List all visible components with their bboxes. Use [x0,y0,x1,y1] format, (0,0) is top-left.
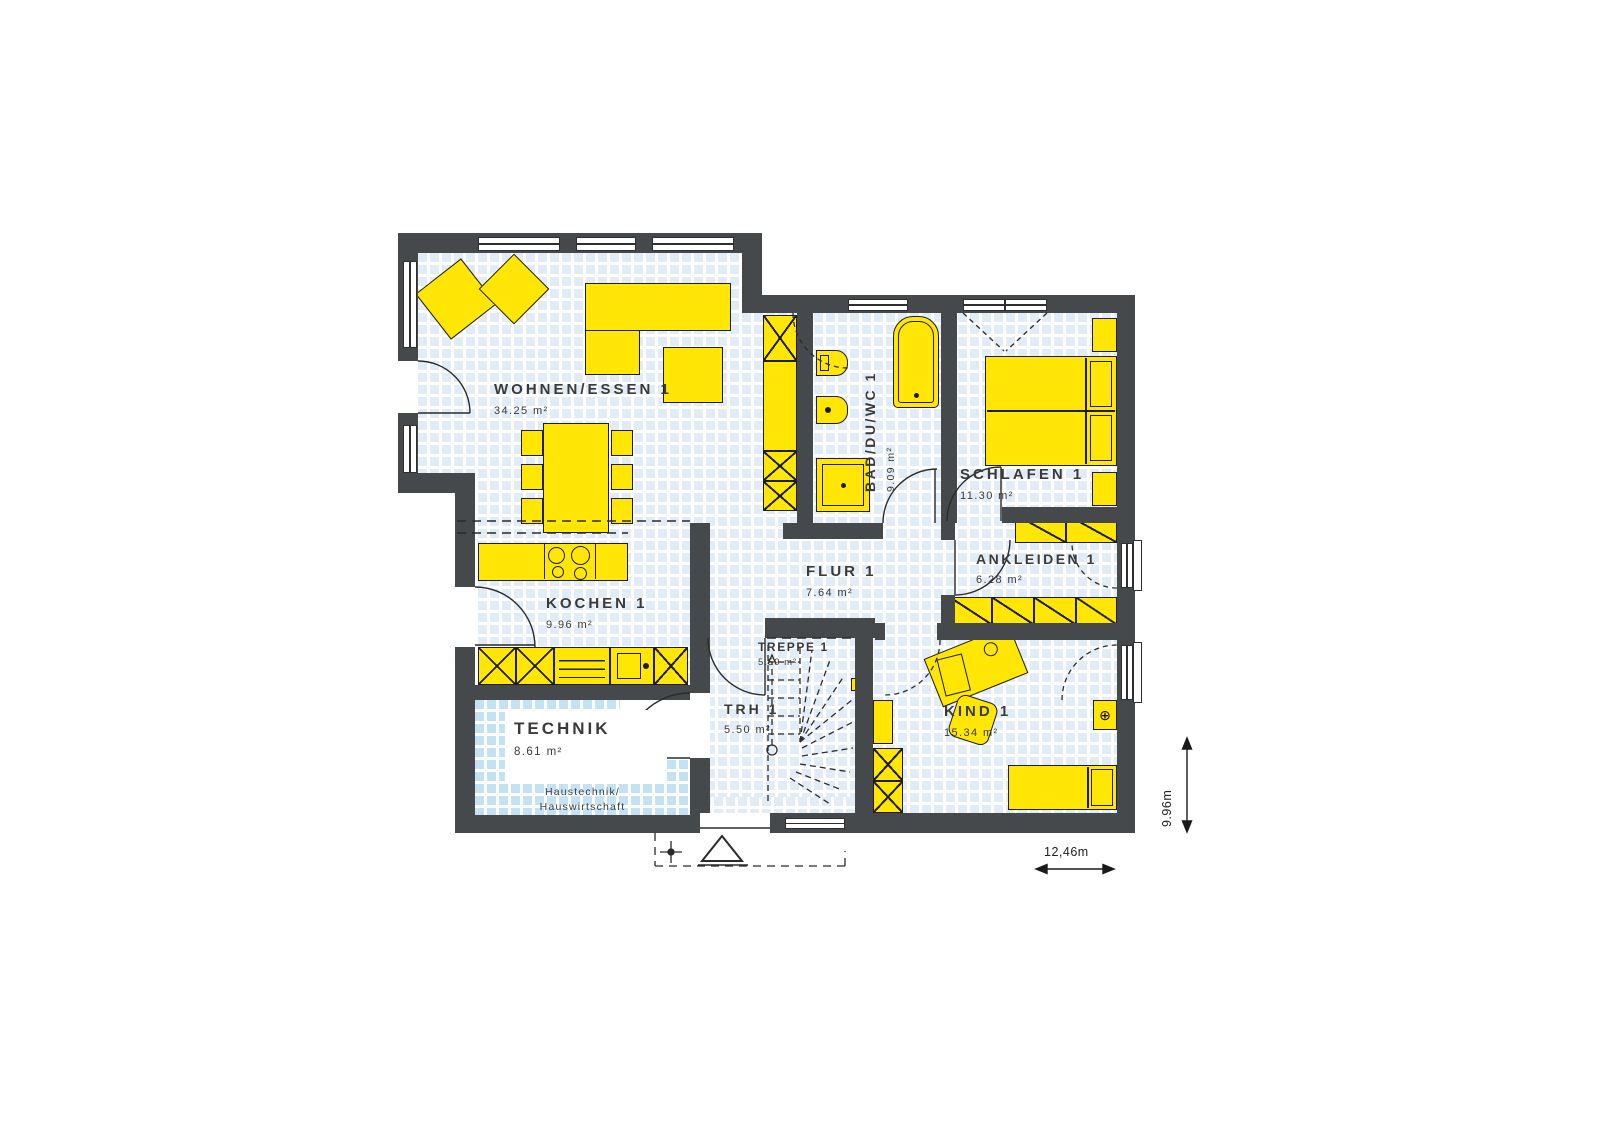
wall [783,523,883,539]
entrance-triangle [698,836,748,865]
living-cabinet-cell [763,481,797,511]
radiator: ⊕ [1093,700,1117,730]
room-name: TREPPE 1 [758,640,829,654]
wardrobe-cell [1034,597,1076,625]
room-name: TECHNIK [514,719,611,739]
coffee-table [663,347,723,403]
room-name: BAD/DU/WC 1 [862,342,878,492]
wardrobe-cell [1076,597,1117,625]
kitchen-cabinet [654,647,688,685]
window [848,299,908,311]
wall [690,758,710,815]
window [403,425,417,473]
floor-plan: ⊕ [0,0,1600,1132]
living-cabinet-cell [763,451,797,481]
window-mullion [1004,299,1006,311]
room-area: 7.64 m² [806,587,877,599]
room-label-ankleiden: ANKLEIDEN 1 6.28 m² [976,551,1097,586]
wall [941,313,957,523]
dining-chair [611,498,633,524]
bathtub [893,316,939,408]
room-name: TRH 1 [724,701,779,717]
dimension-width-label: 12,46m [1044,845,1089,859]
entrance-door-opening [700,813,770,833]
dining-chair [521,430,543,456]
porch-outline [655,833,845,866]
door-opening [398,361,418,413]
toilet [816,350,848,376]
room-label-schlafen: SCHLAFEN 1 11.30 m² [960,466,1084,502]
wall [941,507,950,523]
wardrobe-cell [992,597,1034,625]
kitchen-island [478,543,628,581]
room-name: FLUR 1 [806,563,877,580]
living-cabinet-cell [763,315,797,361]
kitchen-drawers [554,647,610,685]
room-area: 8.61 m² [514,746,611,758]
room-label-kochen: KOCHEN 1 9.96 m² [546,595,648,631]
survey-cross [660,841,682,863]
wall [690,523,710,693]
dining-chair [521,464,543,490]
bed-split-line [987,410,1115,412]
drawer-lines [559,653,605,679]
room-label-flur: FLUR 1 7.64 m² [806,563,877,599]
desk-item [937,653,971,696]
cooktop-burner [571,546,590,565]
window [403,261,417,348]
wall [865,813,1135,833]
wall [875,623,885,640]
wardrobe-cell [950,597,992,625]
wall [855,638,873,815]
exterior-notch-top-right [762,253,1117,295]
room-area: 9.09 m² [885,342,897,492]
sink-basin [617,653,641,679]
wall [1002,507,1117,523]
nightstand [1092,318,1117,352]
washbasin-drain [825,407,831,413]
pillow [1090,415,1112,461]
room-name: ANKLEIDEN 1 [976,551,1097,567]
kind-wardrobe-cell [873,781,903,813]
wall [941,523,955,540]
wall [455,815,715,833]
door-opening [455,587,475,647]
kind-bed-head-line [1087,767,1089,808]
room-name: KOCHEN 1 [546,595,648,612]
nightstand [1092,472,1117,506]
desk-monitor [982,640,1000,658]
room-area: 15.34 m² [944,727,1011,739]
window [1121,543,1133,588]
sink-faucet [643,663,649,669]
wall [455,473,475,833]
door-opening [690,693,710,758]
wall [797,313,813,523]
room-area: 6.28 m² [976,574,1097,586]
wall [937,623,1117,640]
wall [742,295,1135,313]
dimension-width-arrow [1036,865,1114,874]
kitchen-sink [610,647,654,685]
kind-shelf [873,700,893,744]
room-label-kind: KIND 1 15.34 m² [944,703,1011,739]
dining-table [543,423,609,533]
toilet-tank [820,355,829,371]
bathtub-inner [898,321,934,403]
wall [941,595,955,623]
kind-pillow [1091,769,1113,806]
sofa-horizontal-part [585,283,731,331]
window [652,237,734,251]
exterior-notch-bottom-left [398,493,455,838]
kind-wardrobe-cell [873,748,903,781]
room-area: 5.50 m² [724,724,779,736]
room-area: 34.25 m² [494,405,672,417]
room-label-bad: BAD/DU/WC 1 9.09 m² [862,342,897,492]
cooktop-burner [552,566,564,578]
window-outer-frame [1133,642,1142,703]
kitchen-cabinet [478,647,516,685]
dimension-height-label: 9.96m [1160,790,1174,827]
kitchen-cabinet [516,647,554,685]
washbasin [816,396,848,424]
window [576,237,636,251]
room-label-treppe: TREPPE 1 5.59 m² [758,640,829,668]
bathtub-drain [914,393,919,398]
room-label-trh: TRH 1 5.50 m² [724,701,779,736]
room-name: KIND 1 [944,703,1011,720]
wall [765,618,875,638]
bed-head-line [1085,358,1087,464]
room-area: 5.59 m² [758,657,829,668]
dining-chair [611,464,633,490]
window [1121,645,1133,700]
window [478,237,560,251]
shower-drain [841,483,846,488]
cooktop-burner [548,547,565,564]
room-area: 11.30 m² [960,490,1084,502]
pillow [1090,361,1112,407]
dining-chair [611,430,633,456]
room-name: WOHNEN/ESSEN 1 [494,381,672,398]
cooktop-burner [574,567,587,580]
dimension-height-arrow [1183,738,1192,832]
room-label-wohnen: WOHNEN/ESSEN 1 34.25 m² [494,381,672,417]
window-outer-frame [1133,540,1142,591]
room-label-technik: TECHNIK 8.61 m² [514,719,611,758]
living-cabinet-cell [763,361,797,451]
technik-note-line2: Hauswirtschaft [475,801,690,813]
wall [475,685,710,700]
room-area: 9.96 m² [546,619,648,631]
room-name: SCHLAFEN 1 [960,466,1084,483]
dining-chair [521,498,543,524]
technik-note-line1: Haustechnik/ [475,786,690,798]
window [785,818,845,829]
